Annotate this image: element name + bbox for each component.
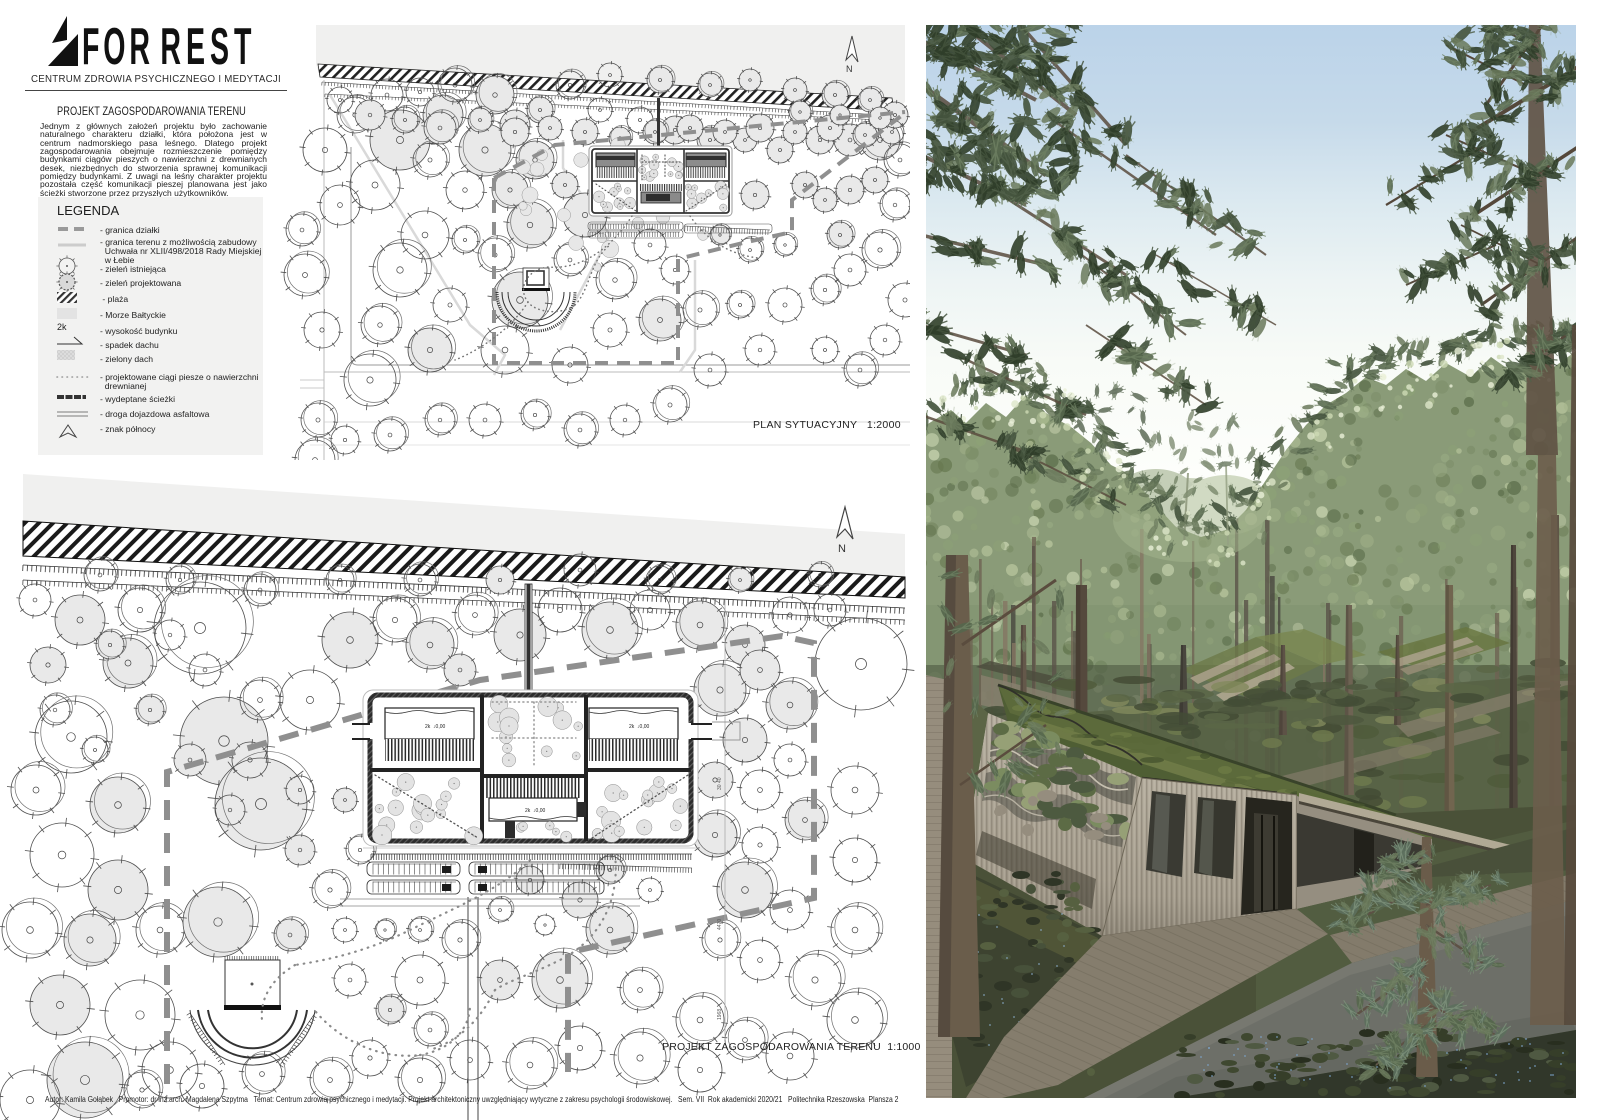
- svg-text:N: N: [846, 64, 853, 74]
- svg-text:2k ↓0,00: 2k ↓0,00: [425, 724, 446, 730]
- svg-text:2k: 2k: [57, 322, 67, 332]
- svg-text:2k ↓0,00: 2k ↓0,00: [629, 724, 650, 730]
- svg-text:1968: 1968: [717, 1009, 723, 1020]
- svg-text:4470: 4470: [717, 919, 723, 930]
- svg-text:PROJEKT ZAGOSPODAROWANIA TEREN: PROJEKT ZAGOSPODAROWANIA TERENU 1:1000: [662, 1041, 920, 1053]
- svg-text:PLAN SYTUACYJNY 1:2000: PLAN SYTUACYJNY 1:2000: [753, 419, 901, 431]
- svg-text:N: N: [838, 543, 846, 555]
- svg-text:2k ↓0,00: 2k ↓0,00: [525, 808, 546, 814]
- svg-text:30 40: 30 40: [717, 777, 723, 790]
